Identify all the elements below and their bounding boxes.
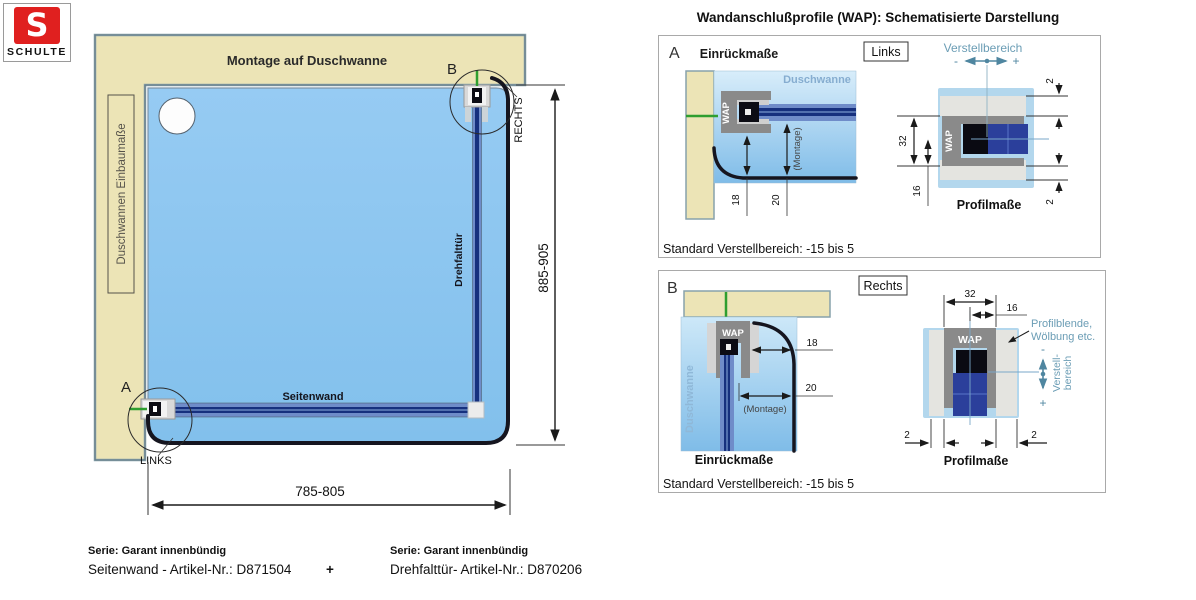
wap-panel-a-drawing: A Einrückmaße Links Verstellbereich - + … <box>659 36 1100 257</box>
montage-label-b: (Montage) <box>743 404 786 415</box>
montage-label-a: (Montage) <box>792 127 803 170</box>
profilmasse-label-b: Profilmaße <box>944 454 1009 468</box>
seitenwand-label: Seitenwand <box>282 391 343 403</box>
wall-strip-a <box>686 71 714 219</box>
schulte-logo: S SCHULTE <box>3 3 71 62</box>
dim-2-left-label: 2 <box>904 430 910 441</box>
schulte-logo-mark: S <box>14 7 60 44</box>
width-dimension: 785-805 <box>148 462 510 515</box>
dim-16-b: 16 <box>970 303 1027 321</box>
wap-title: Wandanschlußprofile (WAP): Schematisiert… <box>628 10 1128 25</box>
artikel-label-right: Drehfalttür- Artikel-Nr.: D870206 <box>390 562 582 577</box>
dim-32-a: 32 <box>897 116 940 166</box>
einrueckmasse-label-b: Einrückmaße <box>695 453 774 467</box>
dim-18-label-a: 18 <box>731 194 742 206</box>
footer-drehfalttuer: Serie: Garant innenbündig Drehfalttür- A… <box>390 545 582 577</box>
profilblende-callout: Profilblende, Wölbung etc. <box>1009 318 1095 343</box>
serie-label-right: Serie: Garant innenbündig <box>390 545 582 557</box>
standard-note-a: Standard Verstellbereich: -15 bis 5 <box>663 242 854 256</box>
dim-2-top-label-a: 2 <box>1045 78 1056 84</box>
wap-label-a-left: WAP <box>721 102 732 124</box>
plus-label-a: + <box>1012 54 1019 68</box>
wap-label-a-right: WAP <box>944 130 955 152</box>
dim-18-label-b: 18 <box>806 338 818 349</box>
verstell-label-2: bereich <box>1062 356 1074 391</box>
dim-16-label-a: 16 <box>912 185 923 197</box>
schulte-logo-text: SCHULTE <box>7 46 67 58</box>
drain-circle <box>159 98 195 134</box>
footer-seitenwand: Serie: Garant innenbündig Seitenwand - A… <box>88 545 291 577</box>
panel-bar-a <box>749 104 856 121</box>
verstellbereich-label-a: Verstellbereich <box>944 41 1023 55</box>
panel-bar-b <box>720 355 734 451</box>
corner-connector <box>468 402 484 418</box>
artikel-label-left: Seitenwand - Artikel-Nr.: D871504 <box>88 562 291 577</box>
plus-label-b: + <box>1039 396 1046 410</box>
serie-label-left: Serie: Garant innenbündig <box>88 545 291 557</box>
point-b-label: B <box>447 61 457 78</box>
dim-16-label-b: 16 <box>1006 303 1018 314</box>
wap-label-b-left: WAP <box>722 328 744 339</box>
dim-2-right-b: 2 <box>981 419 1047 448</box>
links-tag: Links <box>871 45 900 59</box>
panel-b-letter: B <box>667 280 678 297</box>
wall-label: Montage auf Duschwanne <box>227 53 387 68</box>
wap-panel-b: B Rechts Duschwanne WAP 18 <box>658 270 1106 493</box>
profile-section-a: WAP <box>940 96 1028 180</box>
panel-a-letter: A <box>669 45 680 62</box>
dim-2-right-label: 2 <box>1031 430 1037 441</box>
side-wall-panel <box>160 403 475 417</box>
installation-drawing: Montage auf Duschwanne Duschwannen Einba… <box>85 28 605 540</box>
wap-panel-b-drawing: B Rechts Duschwanne WAP 18 <box>659 271 1105 492</box>
duschwanne-label-a: Duschwanne <box>783 74 851 86</box>
links-label: LINKS <box>140 455 172 467</box>
dim-32-label-b: 32 <box>964 289 976 300</box>
minus-label-a: - <box>954 54 958 68</box>
dim-20-label-b: 20 <box>805 383 817 394</box>
dim-32-label-a: 32 <box>898 135 909 147</box>
rechts-label: RECHTS <box>513 97 525 142</box>
profilmasse-label-a: Profilmaße <box>957 198 1022 212</box>
verstellbereich-b: - + Verstell- bereich <box>1039 342 1074 410</box>
dim-height-label: 885-905 <box>536 243 551 293</box>
dim-20-label-a: 20 <box>771 194 782 206</box>
drehfalttuer-label: Drehfalttür <box>453 233 465 287</box>
wap-panel-a: A Einrückmaße Links Verstellbereich - + … <box>658 35 1101 258</box>
footer-plus: + <box>326 562 334 577</box>
verstell-dot-a <box>985 59 990 64</box>
duschwanne-label-b: Duschwanne <box>684 365 696 433</box>
profilblende-label-1: Profilblende, <box>1031 318 1092 330</box>
rechts-tag: Rechts <box>864 279 903 293</box>
dim-width-label: 785-805 <box>295 484 345 499</box>
schulte-logo-letter: S <box>25 6 48 44</box>
dim-2-bottom-label-a: 2 <box>1045 199 1056 205</box>
page: S SCHULTE <box>0 0 1196 600</box>
wall-strip-b <box>684 291 830 317</box>
tray-label: Duschwannen Einbaumaße <box>116 123 128 264</box>
einrueckmasse-label-a: Einrückmaße <box>700 47 779 61</box>
standard-note-b: Standard Verstellbereich: -15 bis 5 <box>663 477 854 491</box>
point-a-label: A <box>121 379 131 396</box>
dim-2-left-b: 2 <box>904 419 959 448</box>
minus-label-b: - <box>1041 342 1045 356</box>
